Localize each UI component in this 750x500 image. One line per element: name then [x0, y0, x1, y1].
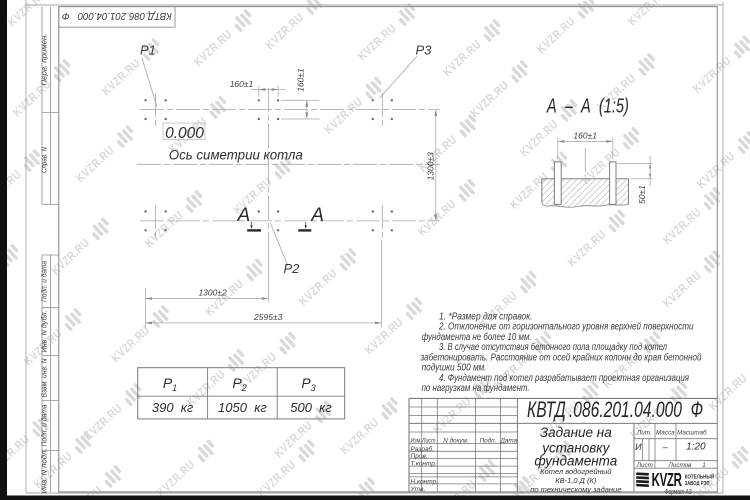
svg-text:Подп. и дата: Подп. и дата [40, 261, 49, 302]
svg-text:1300±2: 1300±2 [198, 288, 227, 298]
svg-text:Разраб.: Разраб. [411, 445, 435, 453]
svg-text:Пров.: Пров. [411, 453, 428, 460]
svg-text:Лит.: Лит. [636, 429, 652, 436]
svg-text:390 кг: 390 кг [152, 400, 194, 415]
svg-text:забетонировать. Расстояние от: забетонировать. Расстояние от осей крайн… [420, 351, 702, 363]
svg-text:–: – [662, 442, 669, 452]
svg-text:Формат А3: Формат А3 [665, 487, 693, 496]
svg-text:Инв. N дубл.: Инв. N дубл. [40, 311, 49, 353]
svg-text:КОТЕЛЬНЫЙ: КОТЕЛЬНЫЙ [685, 473, 715, 481]
svg-text:Ось симетрии котла: Ось симетрии котла [169, 147, 303, 163]
svg-text:4. Фундамент под котел разраба: 4. Фундамент под котел разрабатывает про… [439, 372, 690, 384]
svg-text:по техническому задание: по техническому задание [530, 485, 621, 494]
svg-text:Дата: Дата [499, 437, 517, 444]
svg-text:Справ. N: Справ. N [40, 147, 49, 173]
svg-text:50±1: 50±1 [637, 185, 647, 204]
svg-text:Задание на: Задание на [540, 425, 612, 440]
svg-text:КВ-1,0 Д (К): КВ-1,0 Д (К) [555, 476, 597, 485]
svg-text:N докум.: N докум. [443, 436, 468, 444]
svg-text:фундамента не более 10 мм.: фундамента не более 10 мм. [422, 331, 532, 343]
svg-text:Т.контр.: Т.контр. [411, 461, 437, 468]
svg-text:Изм.Лист: Изм.Лист [411, 437, 436, 444]
svg-text:Подп.: Подп. [480, 436, 497, 444]
svg-text:160±1: 160±1 [573, 131, 597, 141]
svg-text:Масса: Масса [656, 429, 675, 436]
svg-text:Утв.: Утв. [410, 486, 426, 493]
svg-text:Перв. примен.: Перв. примен. [40, 34, 49, 86]
svg-text:1: 1 [702, 462, 706, 469]
svg-text:КВТД.086.201.04.000 Ф: КВТД.086.201.04.000 Ф [62, 10, 172, 21]
svg-text:160±1: 160±1 [295, 68, 305, 92]
svg-text:А – А (1:5): А – А (1:5) [546, 96, 629, 118]
svg-text:160±1: 160±1 [230, 79, 254, 89]
svg-text:А: А [310, 205, 324, 226]
svg-text:А: А [237, 205, 251, 226]
svg-text:P2: P2 [284, 261, 301, 276]
svg-text:Н.контр.: Н.контр. [411, 479, 439, 486]
svg-text:Лист: Лист [636, 462, 653, 469]
svg-text:Масштаб: Масштаб [677, 428, 707, 436]
svg-text:Инв. N подл.: Инв. N подл. [40, 449, 49, 494]
svg-text:1:20: 1:20 [686, 442, 706, 453]
svg-text:И: И [635, 442, 642, 452]
svg-text:по нагрузкам на фундамент.: по нагрузкам на фундамент. [422, 382, 530, 394]
svg-text:2595±3: 2595±3 [253, 312, 283, 322]
svg-text:1300±3: 1300±3 [425, 152, 435, 181]
svg-text:1050 кг: 1050 кг [218, 400, 267, 415]
svg-text:3. В случае отсутствия бетонно: 3. В случае отсутствия бетонного пола пл… [439, 341, 667, 353]
svg-text:Взам. инв. N: Взам. инв. N [40, 358, 49, 398]
svg-text:P1: P1 [140, 43, 156, 58]
svg-text:Подп. и дата: Подп. и дата [40, 405, 49, 447]
svg-text:Котел водогрейный: Котел водогрейный [540, 467, 612, 476]
svg-text:500 кг: 500 кг [290, 400, 332, 415]
svg-text:0.000: 0.000 [165, 125, 204, 142]
svg-text:P3: P3 [416, 43, 433, 58]
svg-text:КВТД .086.201.04.000 Ф: КВТД .086.201.04.000 Ф [527, 397, 703, 422]
